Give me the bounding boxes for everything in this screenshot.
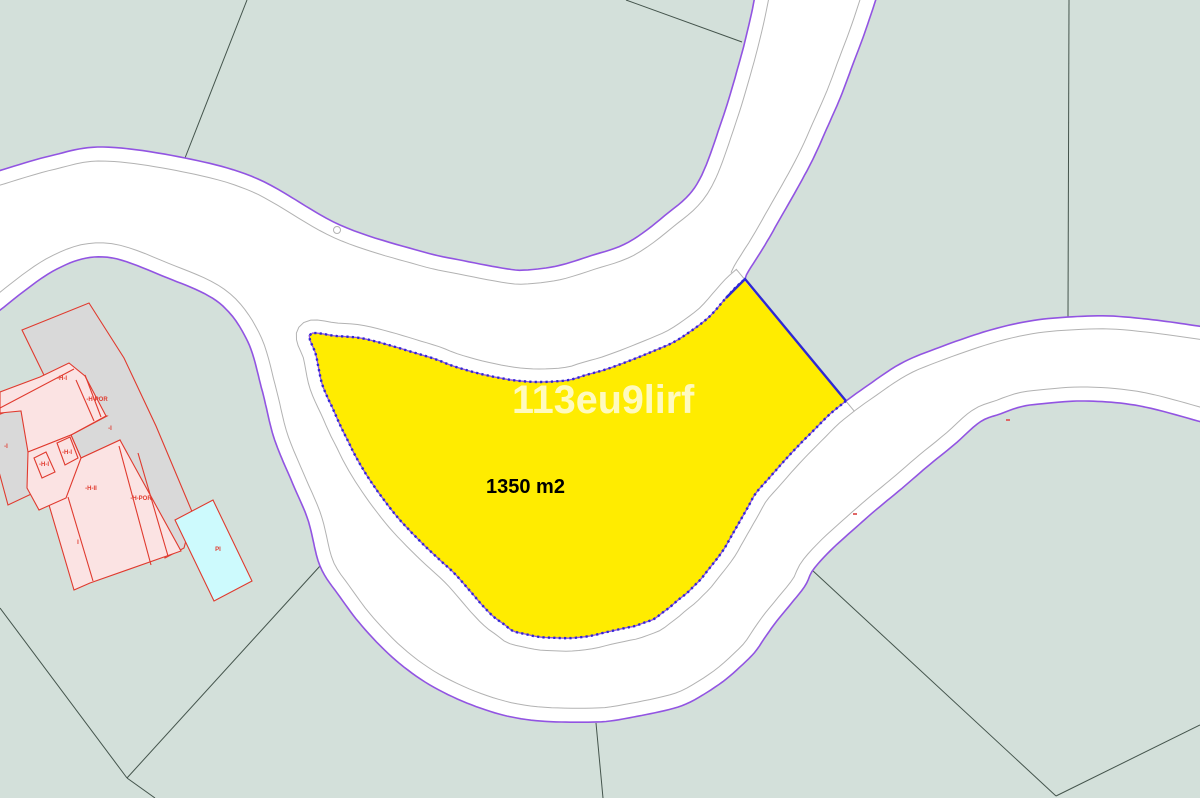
svg-text:-I: -I: [4, 444, 8, 450]
svg-text:-H-POR: -H-POR: [86, 397, 108, 403]
svg-text:-H-I: -H-I: [57, 376, 67, 382]
svg-text:1350 m2: 1350 m2: [486, 476, 565, 498]
svg-text:-H-II: -H-II: [85, 486, 97, 492]
svg-text:-H-I: -H-I: [39, 462, 49, 468]
svg-text:113eu9lirf: 113eu9lirf: [512, 378, 695, 422]
svg-text:-I: -I: [108, 426, 112, 432]
svg-text:-H-POR: -H-POR: [130, 496, 152, 502]
svg-text:PI: PI: [215, 547, 221, 553]
svg-text:-H-I: -H-I: [62, 450, 72, 456]
